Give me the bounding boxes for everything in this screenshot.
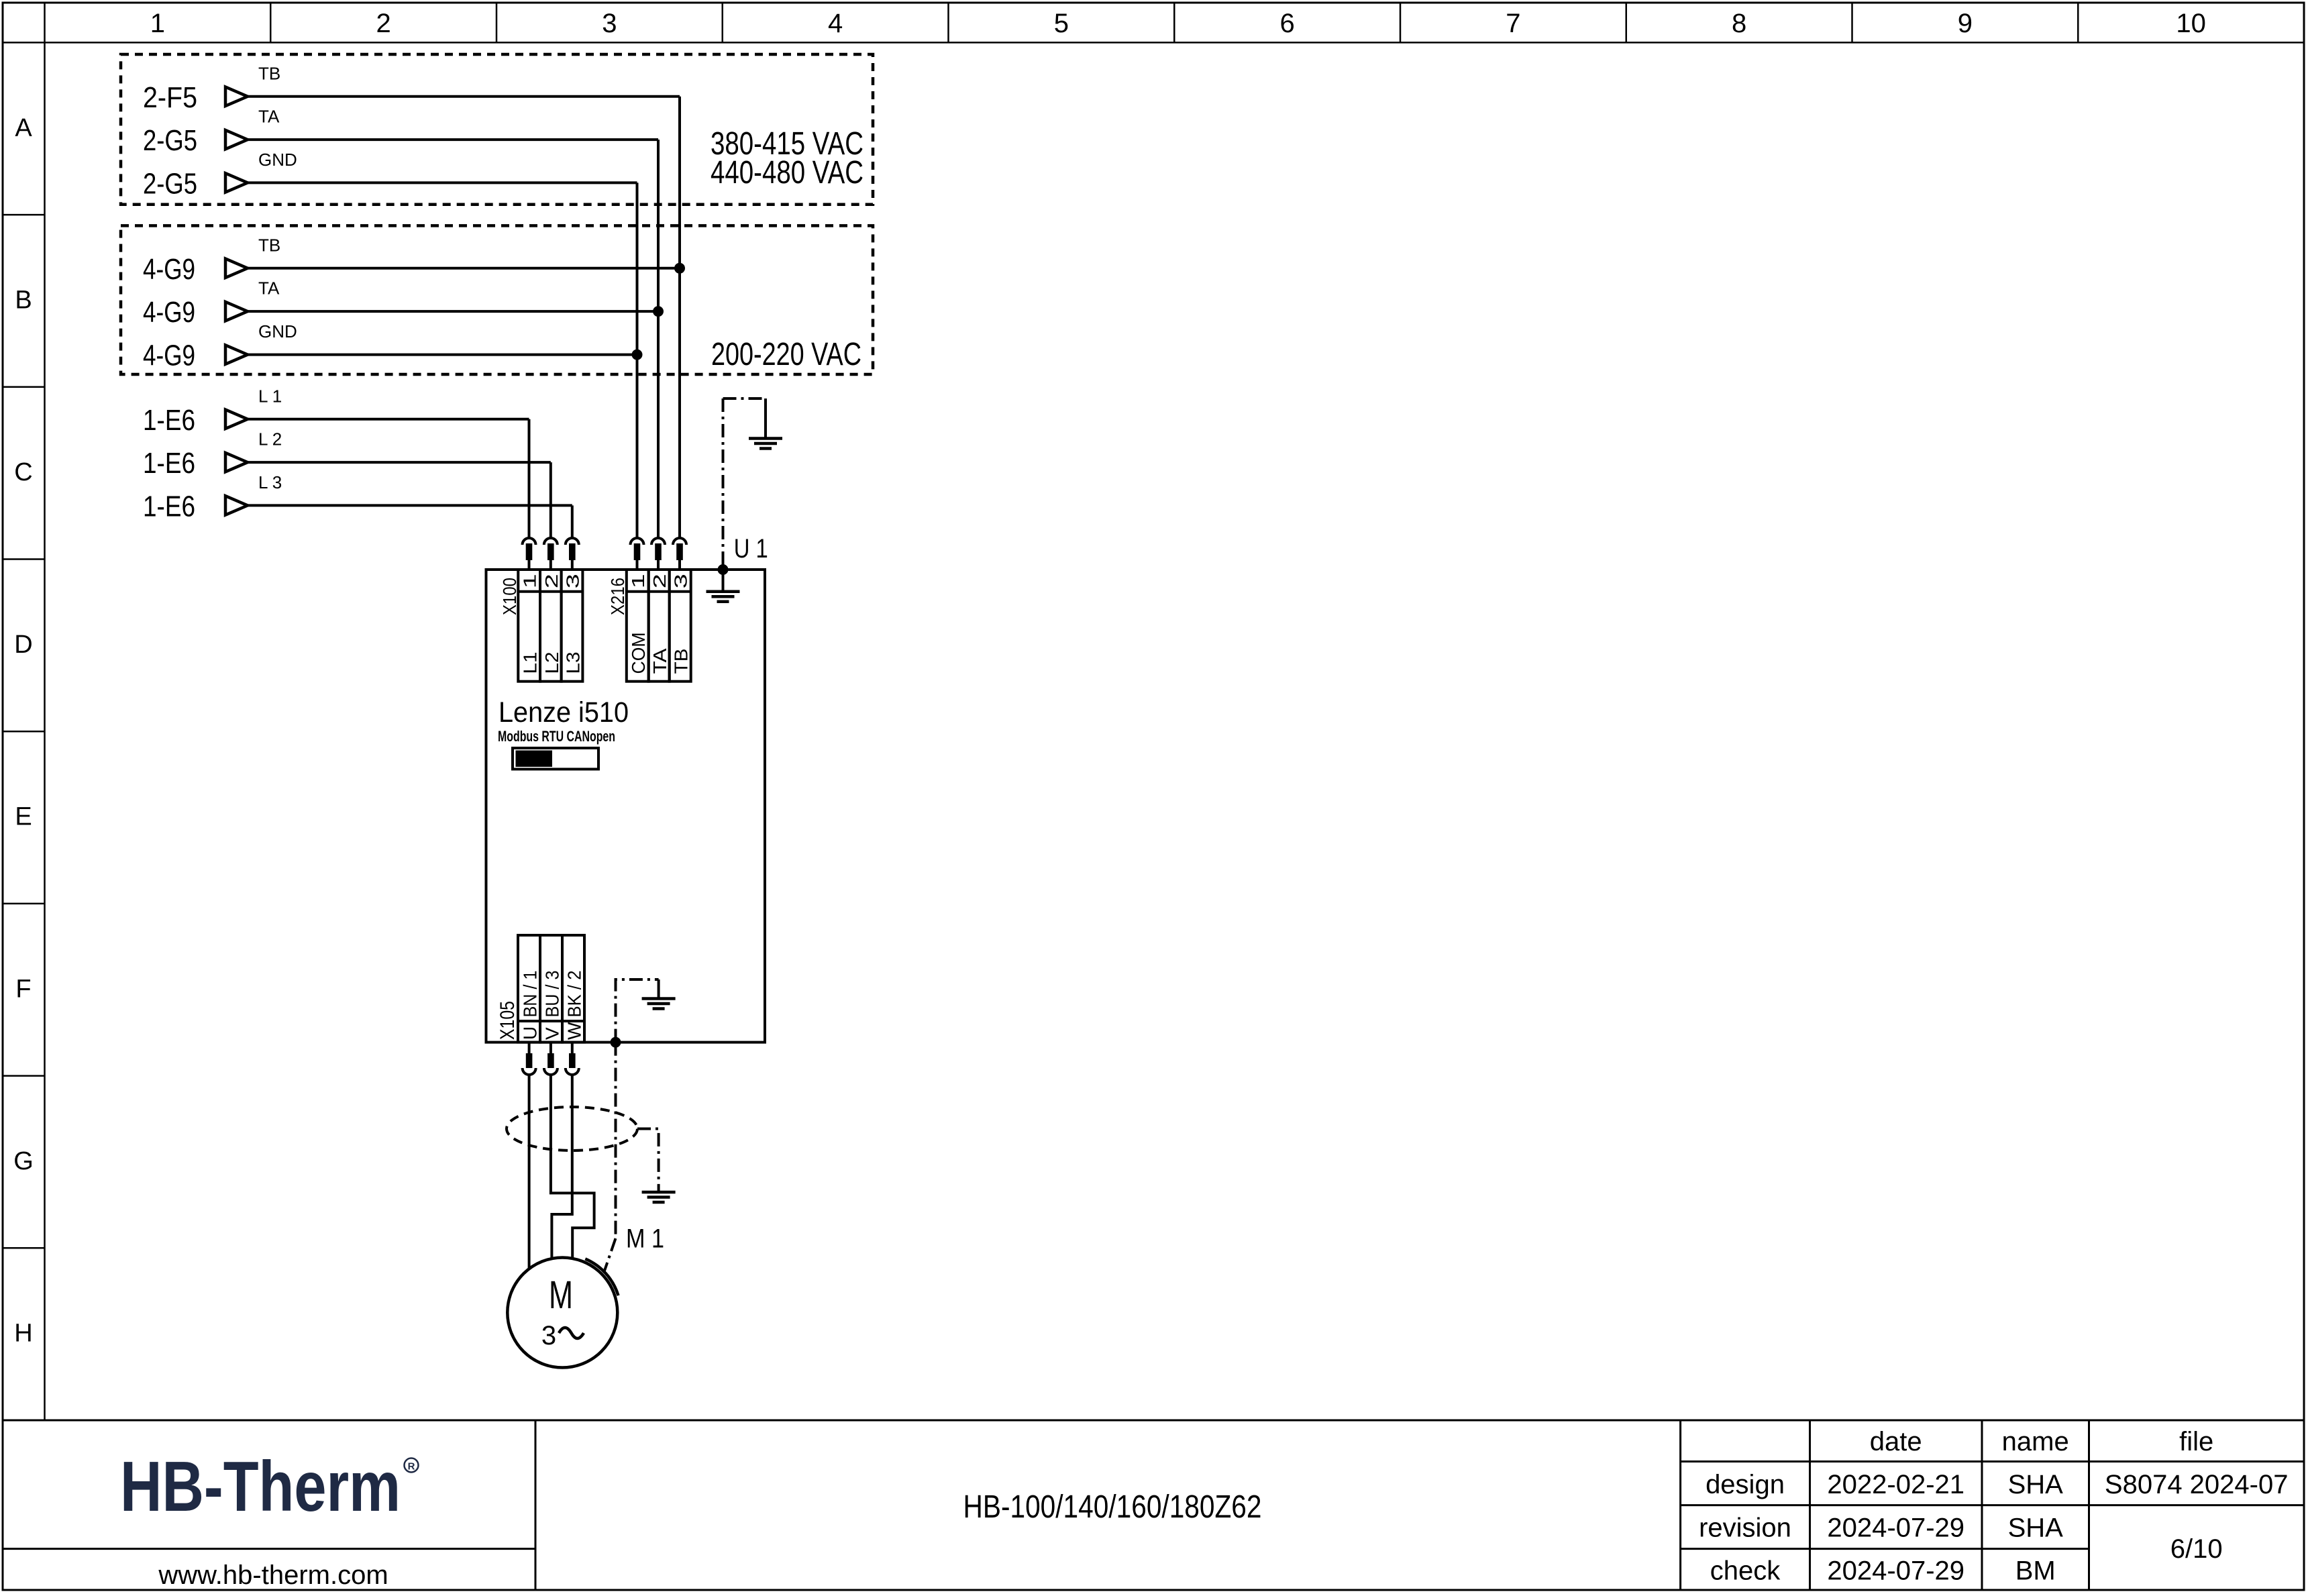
svg-text:L 3: L 3 [258,472,282,492]
svg-text:COM: COM [628,633,649,674]
svg-text:A: A [15,114,32,142]
svg-text:design: design [1706,1470,1785,1499]
svg-text:7: 7 [1506,9,1520,38]
svg-text:C: C [14,458,32,486]
svg-text:S8074 2024-07: S8074 2024-07 [2105,1470,2289,1499]
svg-text:X100: X100 [499,578,520,615]
svg-text:M: M [549,1273,573,1317]
svg-text:2-G5: 2-G5 [143,167,197,200]
svg-text:BN / 1: BN / 1 [520,971,541,1018]
svg-text:file: file [2179,1427,2213,1456]
svg-text:L 1: L 1 [258,386,282,406]
svg-text:2024-07-29: 2024-07-29 [1827,1556,1964,1586]
svg-text:L1: L1 [520,652,541,674]
svg-text:4: 4 [828,9,843,38]
svg-text:R: R [408,1461,415,1473]
svg-text:4-G9: 4-G9 [143,253,195,286]
svg-text:BK / 2: BK / 2 [564,971,585,1018]
svg-text:X216: X216 [607,578,628,615]
svg-text:H: H [14,1320,32,1348]
svg-text:3: 3 [671,574,691,588]
svg-text:1: 1 [628,574,648,588]
svg-text:U: U [520,1026,541,1040]
svg-text:GND: GND [258,321,297,341]
svg-text:4-G9: 4-G9 [143,296,195,329]
svg-text:1-E6: 1-E6 [143,404,195,437]
svg-text:TA: TA [649,648,670,674]
svg-text:G: G [13,1147,34,1175]
svg-text:SHA: SHA [2008,1470,2064,1499]
svg-text:Modbus RTU CANopen: Modbus RTU CANopen [498,728,615,745]
svg-text:1-E6: 1-E6 [143,490,195,523]
svg-text:B: B [15,286,32,314]
svg-text:TB: TB [671,649,692,674]
svg-text:9: 9 [1958,9,1973,38]
svg-text:2: 2 [541,574,562,588]
svg-text:TA: TA [258,107,280,127]
svg-text:X105: X105 [496,1001,519,1040]
svg-text:TB: TB [258,235,280,255]
svg-text:1: 1 [150,9,165,38]
svg-text:10: 10 [2176,9,2206,38]
svg-text:HB-Therm: HB-Therm [120,1447,401,1526]
svg-text:2022-02-21: 2022-02-21 [1827,1470,1964,1499]
svg-text:BU / 3: BU / 3 [542,971,563,1018]
svg-text:name: name [2002,1427,2069,1456]
svg-text:Lenze i510: Lenze i510 [499,696,629,729]
svg-text:www.hb-therm.com: www.hb-therm.com [158,1560,388,1590]
svg-text:2-G5: 2-G5 [143,124,197,157]
svg-text:BM: BM [2015,1556,2056,1586]
svg-text:2-F5: 2-F5 [143,81,197,114]
svg-text:V: V [542,1027,563,1040]
svg-text:date: date [1870,1427,1922,1456]
svg-text:4-G9: 4-G9 [143,339,195,372]
svg-text:GND: GND [258,150,297,170]
svg-text:3: 3 [563,574,583,588]
svg-text:U 1: U 1 [734,534,768,564]
svg-text:TA: TA [258,278,280,299]
svg-text:L 2: L 2 [258,429,282,449]
svg-text:L3: L3 [563,652,584,674]
svg-text:D: D [14,631,32,659]
svg-text:2: 2 [649,574,670,588]
svg-text:3: 3 [541,1321,556,1350]
svg-text:E: E [15,803,32,831]
svg-text:3: 3 [602,9,617,38]
svg-text:1: 1 [520,574,540,588]
svg-text:5: 5 [1054,9,1069,38]
svg-text:W: W [564,1022,585,1040]
svg-text:200-220 VAC: 200-220 VAC [711,337,861,372]
svg-text:1-E6: 1-E6 [143,447,195,480]
svg-text:TB: TB [258,63,280,83]
svg-text:6/10: 6/10 [2170,1534,2223,1564]
svg-text:L2: L2 [541,652,562,674]
svg-text:HB-100/140/160/180Z62: HB-100/140/160/180Z62 [963,1489,1262,1525]
svg-text:F: F [15,975,31,1003]
svg-text:SHA: SHA [2008,1513,2064,1543]
svg-text:2024-07-29: 2024-07-29 [1827,1513,1964,1543]
svg-text:revision: revision [1699,1513,1791,1543]
svg-text:8: 8 [1732,9,1746,38]
svg-text:6: 6 [1280,9,1295,38]
svg-text:check: check [1710,1556,1781,1586]
svg-text:M 1: M 1 [626,1224,664,1254]
svg-text:440-480 VAC: 440-480 VAC [711,155,863,191]
svg-text:2: 2 [376,9,391,38]
